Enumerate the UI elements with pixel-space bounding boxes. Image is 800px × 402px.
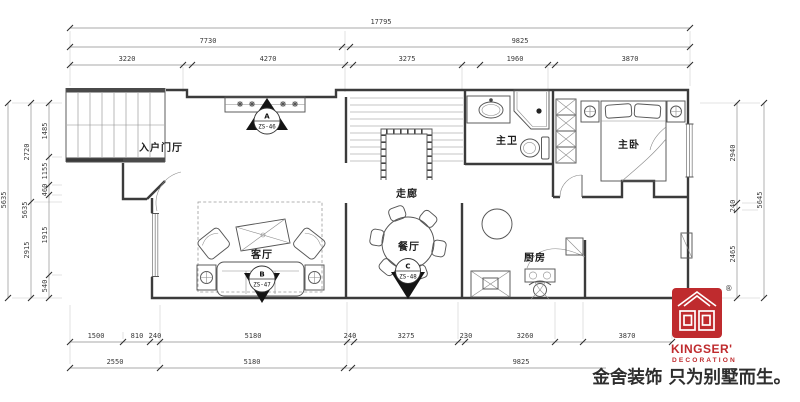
- stairs: [350, 98, 463, 180]
- kitchen-cabinet-x: [471, 271, 510, 297]
- marker-letter: B: [259, 271, 264, 279]
- dim-label: 460: [41, 184, 49, 197]
- dim-label: 3275: [399, 55, 416, 63]
- dimensions-bottom: 1500 810 240 5180 240 3275 230 3260 3870…: [88, 332, 636, 366]
- dimensions-top: 17795 7730 9825 3220 4270 3275 1960 3870: [119, 18, 639, 63]
- room-label-entry: 入户门厅: [139, 141, 183, 154]
- wardrobe-shelves: [556, 115, 576, 147]
- brand-name: KINGSER': [671, 342, 733, 356]
- armchair-seat: [292, 227, 327, 261]
- room-label-dining: 餐厅: [397, 240, 420, 253]
- dim-label: 240: [729, 200, 737, 213]
- dim-label: 2940: [729, 145, 737, 162]
- dim-label: 5635: [0, 192, 8, 209]
- dimension-ticks-top: [67, 25, 693, 68]
- shower-drain-icon: [536, 108, 541, 113]
- vanity-counter: [467, 96, 510, 123]
- registered-icon: ®: [725, 284, 733, 293]
- dimensions-right: 2940 240 2465 5645: [729, 145, 764, 263]
- dim-label: 240: [344, 332, 357, 340]
- dim-label: 2915: [23, 242, 31, 259]
- dim-label: 3870: [622, 55, 639, 63]
- room-label-living: 客厅: [250, 248, 273, 261]
- stair-treads: [350, 98, 463, 161]
- room-labels: 入户门厅 客厅 走廊 餐厅 主卫 主卧 厨房: [139, 134, 640, 264]
- room-label-kitchen: 厨房: [524, 251, 546, 264]
- pillow-left: [605, 104, 632, 119]
- dim-label: 1500: [88, 332, 105, 340]
- dim-label: 540: [41, 280, 49, 293]
- faucet-icon: [489, 98, 493, 102]
- dim-label: 4270: [260, 55, 277, 63]
- dim-label: 9825: [513, 358, 530, 366]
- dim-label: 5645: [756, 192, 764, 209]
- dim-label: 810: [131, 332, 144, 340]
- elevation-marker-c: C ZS-48: [391, 259, 425, 300]
- floor-plan: 17795 7730 9825 3220 4270 3275 1960 3870…: [0, 0, 800, 402]
- dim-label: 3870: [619, 332, 636, 340]
- dim-label: 3220: [119, 55, 136, 63]
- armchair-right: [292, 227, 327, 261]
- entry-door-arc: [156, 172, 181, 211]
- outer-walls: [66, 90, 688, 298]
- dim-label: 1960: [507, 55, 524, 63]
- kingser-logo: ® KINGSER' DECORATION: [671, 284, 737, 364]
- bed-blanket-lines: [601, 121, 666, 181]
- dim-label: 5180: [245, 332, 262, 340]
- dim-label: 5180: [244, 358, 261, 366]
- marker-letter: A: [264, 113, 270, 121]
- tv-cabinet-diagonals: [236, 219, 290, 251]
- wardrobe: [556, 99, 576, 163]
- shower-icon: [514, 90, 549, 129]
- window-bedroom-right: [687, 124, 693, 177]
- marker-code: ZS-48: [399, 275, 417, 281]
- room-label-corridor: 走廊: [395, 187, 418, 200]
- window-living-left: [153, 214, 158, 276]
- dim-label: 1915: [41, 227, 49, 244]
- dimensions-left: 5635 2720 5635 2915 1485 1155 460 1915 5…: [0, 123, 49, 293]
- porch-wall-top: [66, 88, 165, 93]
- kitchen-fixtures: [471, 209, 692, 299]
- marker-code: ZS-46: [258, 125, 276, 131]
- bedroom-door-arc: [560, 175, 582, 197]
- burner-right: [543, 272, 550, 279]
- dim-label: 2465: [729, 246, 737, 263]
- armchair-seat: [196, 227, 231, 261]
- dim-label: 2720: [23, 144, 31, 161]
- toilet-tank: [542, 137, 550, 159]
- master-bath-fixtures: [467, 90, 549, 159]
- brand-subtitle: DECORATION: [672, 357, 737, 364]
- dim-label: 1485: [41, 123, 49, 140]
- dim-label: 240: [149, 332, 162, 340]
- room-label-master-bath: 主卫: [496, 134, 518, 147]
- burner-left: [529, 272, 536, 279]
- sink-basin: [482, 105, 500, 116]
- dim-label: 3260: [517, 332, 534, 340]
- kitchen-table: [482, 209, 512, 239]
- dim-label: 17795: [370, 18, 391, 26]
- armchair-left: [196, 227, 231, 261]
- dimension-lines: [8, 28, 764, 368]
- dim-label: 2550: [107, 358, 124, 366]
- stair-railing: [381, 129, 432, 180]
- stair-railing-posts: [384, 132, 430, 179]
- dim-label: 230: [460, 332, 473, 340]
- slogan: 金舍装饰 只为别墅而生。: [591, 367, 791, 388]
- wall-unit-diagonal: [681, 233, 692, 258]
- dim-label: 5635: [21, 202, 29, 219]
- marker-code: ZS-47: [253, 283, 271, 289]
- dim-label: 7730: [200, 37, 217, 45]
- dimension-ticks-bottom: [67, 339, 675, 371]
- dim-label: 3275: [398, 332, 415, 340]
- pillow-right: [634, 104, 661, 119]
- dim-label: 1155: [41, 163, 49, 180]
- dim-label: 9825: [512, 37, 529, 45]
- room-label-master-bedroom: 主卧: [618, 138, 640, 151]
- toilet-bowl: [524, 142, 536, 153]
- marker-letter: C: [405, 263, 410, 271]
- shower-inner: [517, 92, 547, 127]
- window-caps: [152, 124, 694, 277]
